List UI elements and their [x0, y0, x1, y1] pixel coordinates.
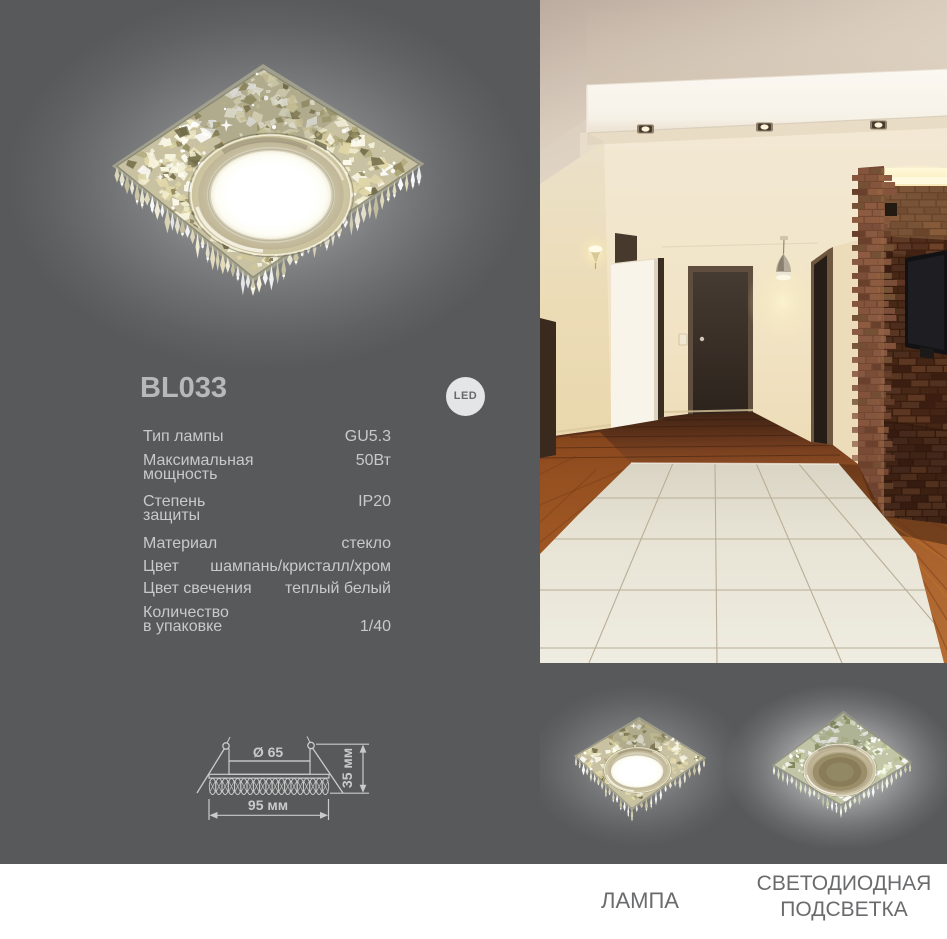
- svg-text:Ø 65: Ø 65: [253, 744, 284, 760]
- svg-text:35 мм: 35 мм: [339, 748, 355, 788]
- svg-text:95 мм: 95 мм: [248, 797, 288, 813]
